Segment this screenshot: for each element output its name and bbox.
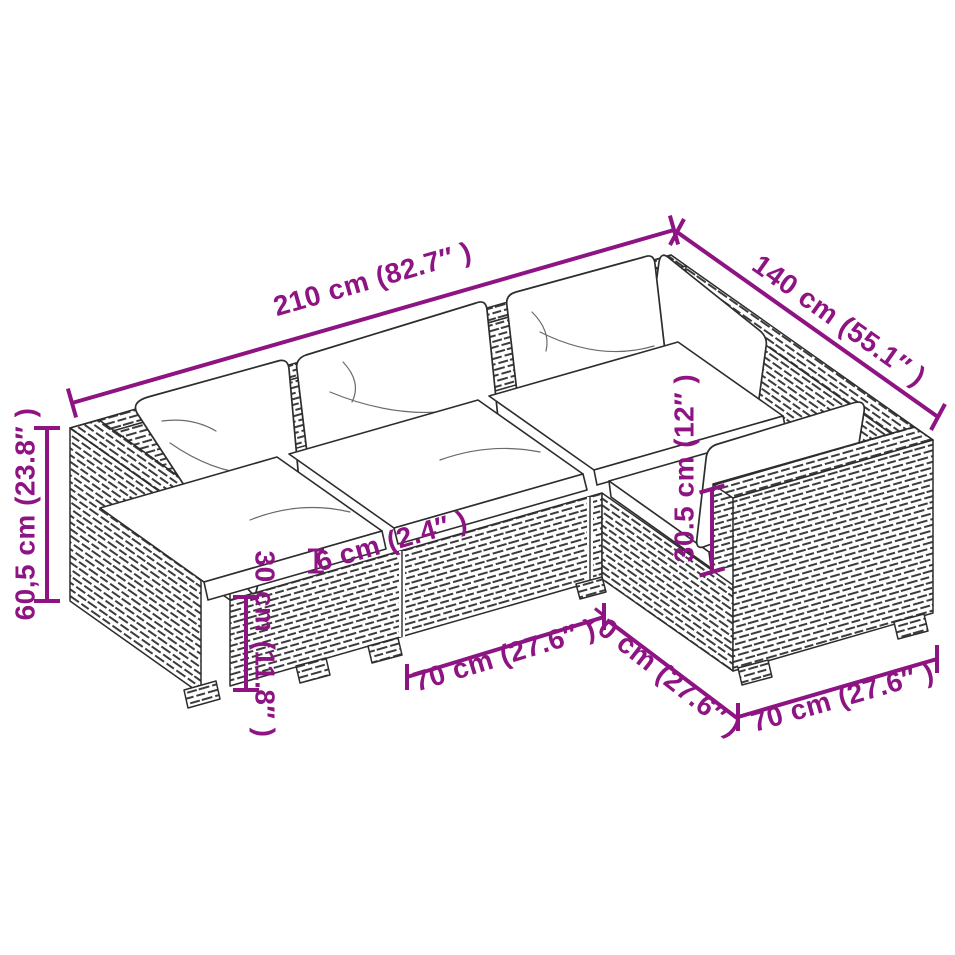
- base-height-label: 30 cm (11.8″ ): [250, 551, 281, 738]
- diagram-canvas: 210 cm (82.7″ ) 140 cm (55.1″ ) 60,5 cm …: [0, 0, 955, 955]
- dimension-total-height: 60,5 cm (23.8″ ): [9, 408, 60, 621]
- product-dimension-diagram: 210 cm (82.7″ ) 140 cm (55.1″ ) 60,5 cm …: [0, 0, 955, 955]
- total-width-label: 210 cm (82.7″ ): [270, 236, 475, 322]
- backrest-height-label: 30.5 cm (12″ ): [668, 374, 699, 563]
- module-width-right-label: 70 cm (27.6″ ): [748, 656, 938, 738]
- total-height-label: 60,5 cm (23.8″ ): [9, 408, 40, 621]
